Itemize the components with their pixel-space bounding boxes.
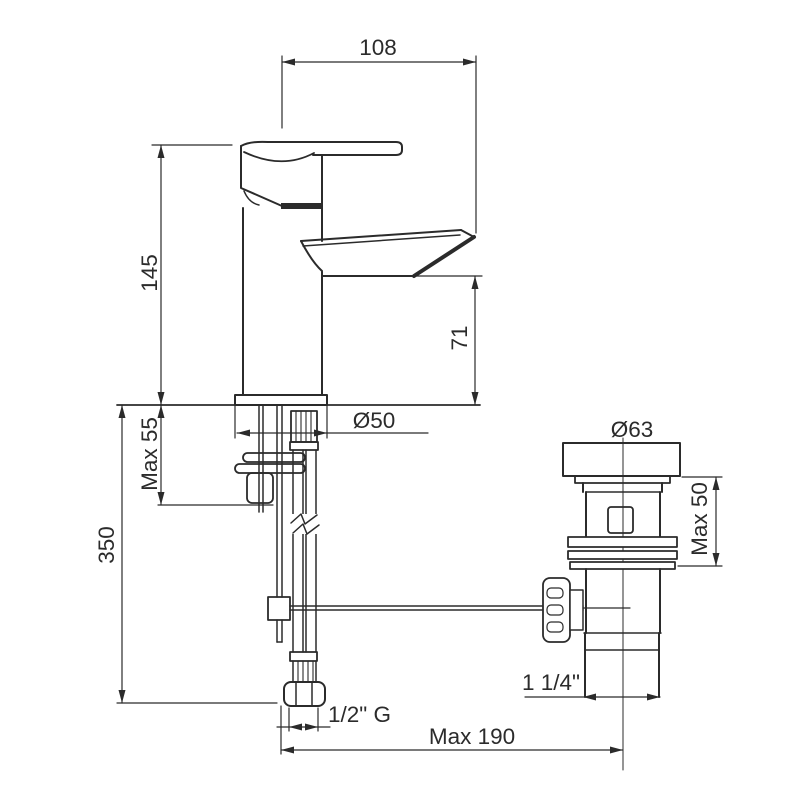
technical-drawing-page: 108 145 71 Ø50 Max 55 350 Ø63 Max 50 1 1… <box>0 0 800 800</box>
hose-collar <box>290 652 317 661</box>
mounting-nut <box>247 473 273 503</box>
spout-underside-slant <box>414 237 474 276</box>
dim-max-popup-rod-reach: Max 190 <box>429 724 515 749</box>
popup-rod-slider <box>268 597 290 620</box>
dim-waste-tail-thread: 1 1/4" <box>522 670 580 695</box>
spout-top-line <box>301 230 461 241</box>
tap-base-flange <box>235 395 327 405</box>
dim-spout-reach: 108 <box>359 35 397 60</box>
shank-nut <box>290 442 318 450</box>
drain-washer <box>568 537 677 547</box>
drain-washer <box>570 562 675 569</box>
dim-max-counter-thickness: Max 55 <box>137 417 162 491</box>
horseshoe-washer <box>235 464 305 473</box>
mixer-tap-outline <box>117 142 480 405</box>
horseshoe-washer <box>243 453 305 462</box>
handle-scoop-curve <box>244 152 314 161</box>
dimension-labels: 108 145 71 Ø50 Max 55 350 Ø63 Max 50 1 1… <box>94 35 712 749</box>
dim-tap-height: 145 <box>137 254 162 292</box>
threaded-shank <box>291 411 317 442</box>
faucet-dimension-diagram: 108 145 71 Ø50 Max 55 350 Ø63 Max 50 1 1… <box>0 0 800 800</box>
drain-washer <box>568 551 677 559</box>
handle-lever <box>241 142 402 155</box>
spout-top-inner-line <box>303 235 460 246</box>
dim-supply-thread: 1/2" G <box>328 702 391 727</box>
supply-nut <box>284 682 325 706</box>
tap-mounting-hardware <box>235 405 583 706</box>
drain-flange <box>563 443 680 476</box>
dim-supply-hose-length: 350 <box>94 526 119 564</box>
linkage-connector <box>570 590 583 630</box>
dim-waste-max-counter: Max 50 <box>687 482 712 556</box>
waste-drain-assembly <box>543 438 680 770</box>
dim-spout-outlet-height: 71 <box>447 325 472 350</box>
dim-waste-flange-diameter: Ø63 <box>611 417 654 442</box>
drain-overflow-hole <box>608 507 633 533</box>
dim-base-diameter: Ø50 <box>353 408 396 433</box>
cartridge-ring <box>281 203 322 209</box>
